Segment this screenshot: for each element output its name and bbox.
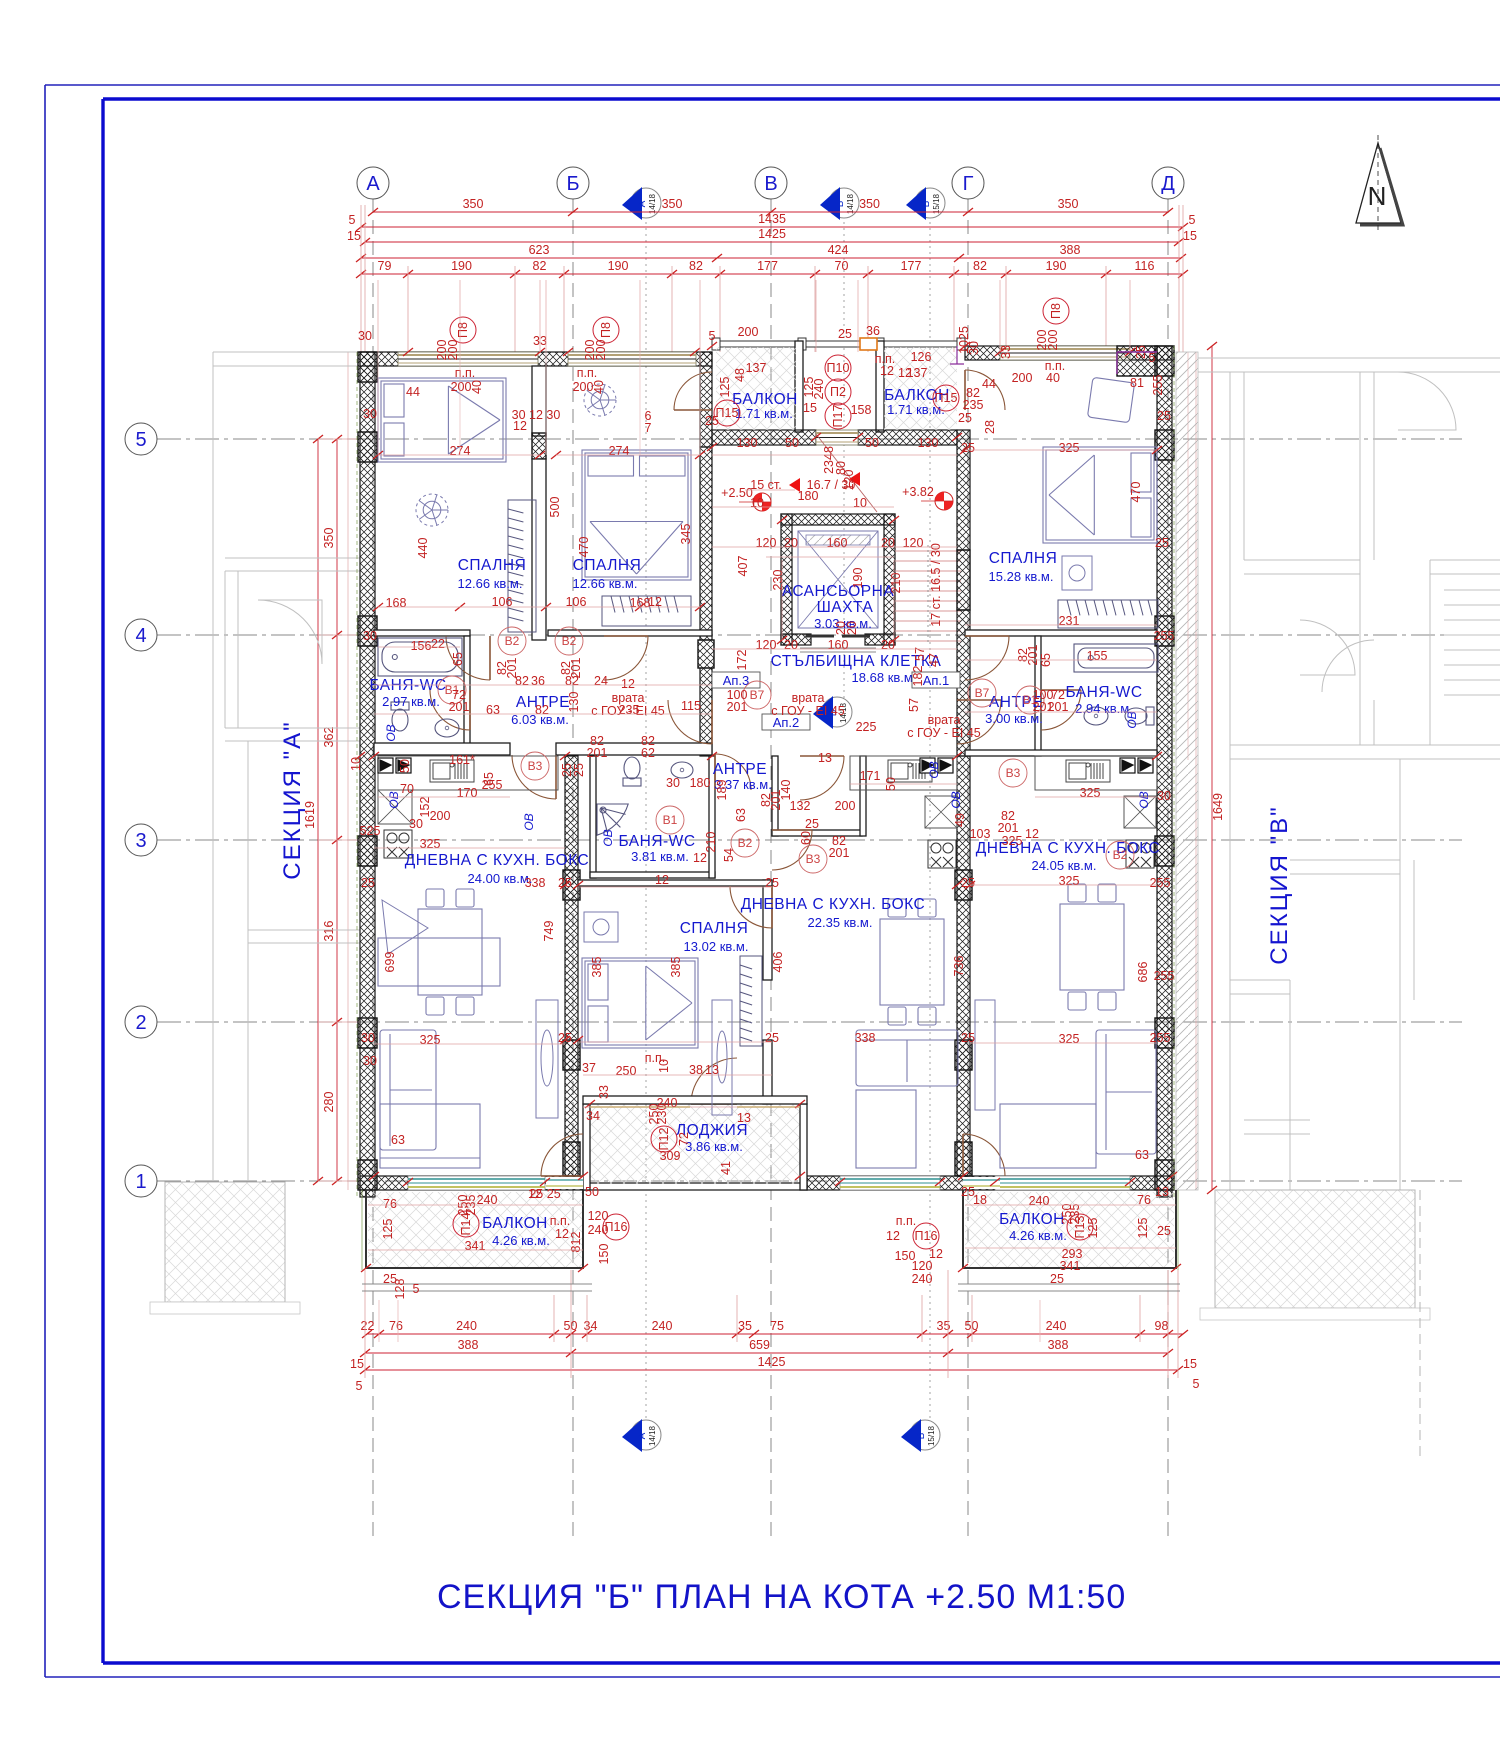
svg-text:50: 50 <box>398 759 412 773</box>
svg-text:СЕКЦИЯ "Б" ПЛАН НА КОТА +2.: СЕКЦИЯ "Б" ПЛАН НА КОТА +2.50 М1:50 <box>437 1578 1126 1616</box>
svg-text:210: 210 <box>889 573 903 594</box>
svg-text:7: 7 <box>645 421 652 435</box>
svg-text:5: 5 <box>135 429 146 451</box>
svg-text:с ГОУ - ЕІ 45: с ГОУ - ЕІ 45 <box>771 704 845 718</box>
svg-text:350: 350 <box>463 197 484 211</box>
svg-text:ДНЕВНА С КУХН. БОКС: ДНЕВНА С КУХН. БОКС <box>405 852 590 869</box>
svg-text:25: 25 <box>838 327 852 341</box>
svg-text:200: 200 <box>451 380 472 394</box>
svg-text:ОВ: ОВ <box>387 791 401 808</box>
svg-text:201: 201 <box>998 821 1019 835</box>
svg-text:В7: В7 <box>975 686 990 700</box>
svg-text:СПАЛНЯ: СПАЛНЯ <box>680 920 749 937</box>
svg-text:4: 4 <box>135 625 146 647</box>
svg-text:63: 63 <box>391 1133 405 1147</box>
svg-text:П8: П8 <box>1049 303 1063 319</box>
svg-text:82: 82 <box>533 259 547 273</box>
svg-text:СПАЛНЯ: СПАЛНЯ <box>458 557 527 574</box>
svg-text:240: 240 <box>812 379 826 400</box>
svg-text:170: 170 <box>457 786 478 800</box>
svg-text:25: 25 <box>958 411 972 425</box>
svg-text:В3: В3 <box>806 852 821 866</box>
svg-text:440: 440 <box>416 538 430 559</box>
svg-text:200: 200 <box>835 799 856 813</box>
svg-text:210: 210 <box>704 832 718 853</box>
svg-text:231: 231 <box>1059 614 1080 628</box>
svg-text:79: 79 <box>378 259 392 273</box>
svg-text:161*: 161* <box>449 753 475 767</box>
svg-text:В2: В2 <box>505 634 520 648</box>
svg-text:137: 137 <box>746 361 767 375</box>
svg-text:25: 25 <box>572 763 586 777</box>
svg-text:150: 150 <box>597 1244 611 1265</box>
svg-text:12.66 кв.м.: 12.66 кв.м. <box>573 576 638 591</box>
svg-text:25: 25 <box>558 876 572 890</box>
svg-text:240: 240 <box>1046 1319 1067 1333</box>
svg-text:50: 50 <box>965 1319 979 1333</box>
svg-text:БАЛКОН: БАЛКОН <box>999 1211 1065 1228</box>
svg-text:1.71 кв.м.: 1.71 кв.м. <box>735 406 793 421</box>
svg-text:ОВ: ОВ <box>522 813 536 830</box>
svg-text:70: 70 <box>400 782 414 796</box>
svg-text:812: 812 <box>569 1232 583 1253</box>
svg-text:81: 81 <box>1130 376 1144 390</box>
svg-text:25: 25 <box>361 876 375 890</box>
svg-text:БАНЯ-WC: БАНЯ-WC <box>618 833 695 850</box>
svg-text:20: 20 <box>845 621 859 635</box>
svg-text:1425: 1425 <box>758 1355 786 1369</box>
svg-text:15.28 кв.м.: 15.28 кв.м. <box>989 569 1054 584</box>
svg-text:25: 25 <box>961 1185 975 1199</box>
svg-text:25: 25 <box>805 817 819 831</box>
svg-text:130: 130 <box>918 436 939 450</box>
svg-text:736: 736 <box>952 956 966 977</box>
svg-text:385: 385 <box>590 957 604 978</box>
svg-text:13: 13 <box>1155 1185 1169 1199</box>
svg-text:В2: В2 <box>1113 848 1128 862</box>
svg-text:А: А <box>637 200 648 207</box>
svg-text:ОВ: ОВ <box>384 724 398 741</box>
svg-text:2: 2 <box>135 1012 146 1034</box>
svg-text:160: 160 <box>828 638 849 652</box>
svg-text:116: 116 <box>1135 259 1155 273</box>
svg-text:В: В <box>764 173 777 195</box>
svg-text:130: 130 <box>567 692 581 713</box>
svg-text:125: 125 <box>381 1219 395 1240</box>
svg-text:В1: В1 <box>663 813 678 827</box>
svg-text:338: 338 <box>525 876 546 890</box>
svg-text:190: 190 <box>608 259 629 273</box>
svg-text:1425: 1425 <box>758 227 786 241</box>
svg-text:749: 749 <box>542 921 556 942</box>
svg-text:30: 30 <box>358 329 372 343</box>
svg-text:201: 201 <box>829 846 850 860</box>
svg-text:30: 30 <box>363 1054 377 1068</box>
svg-text:82: 82 <box>515 674 529 688</box>
svg-text:П15: П15 <box>716 406 739 420</box>
svg-text:177: 177 <box>901 259 922 273</box>
svg-text:57: 57 <box>907 698 921 712</box>
svg-text:44: 44 <box>406 385 420 399</box>
svg-text:п.п.: п.п. <box>577 366 597 380</box>
svg-text:ДНЕВНА С КУХН. БОКС: ДНЕВНА С КУХН. БОКС <box>741 896 926 913</box>
svg-text:63: 63 <box>1135 1148 1149 1162</box>
svg-text:200: 200 <box>594 340 608 361</box>
svg-text:СЕКЦИЯ "В": СЕКЦИЯ "В" <box>1266 805 1293 964</box>
svg-text:225: 225 <box>856 720 877 734</box>
svg-text:280: 280 <box>322 1092 336 1113</box>
svg-text:Б: Б <box>835 200 846 207</box>
svg-text:24: 24 <box>594 674 608 688</box>
svg-text:63: 63 <box>486 703 500 717</box>
svg-text:345: 345 <box>679 524 693 545</box>
svg-text:3.81 кв.м.: 3.81 кв.м. <box>631 849 689 864</box>
svg-text:В2: В2 <box>738 836 753 850</box>
svg-text:Б: Б <box>566 173 579 195</box>
svg-text:В: В <box>921 200 932 207</box>
svg-text:В3: В3 <box>1006 766 1021 780</box>
svg-text:В7: В7 <box>750 688 765 702</box>
svg-text:30: 30 <box>1157 789 1171 803</box>
svg-text:120: 120 <box>903 536 924 550</box>
svg-text:62: 62 <box>641 746 655 760</box>
svg-text:25: 25 <box>705 414 719 428</box>
svg-text:255: 255 <box>482 778 503 792</box>
svg-text:72: 72 <box>677 1132 691 1146</box>
svg-text:5: 5 <box>1189 213 1196 227</box>
svg-text:СПАЛНЯ: СПАЛНЯ <box>573 557 642 574</box>
svg-text:230: 230 <box>771 570 785 591</box>
svg-text:156: 156 <box>411 639 432 653</box>
svg-text:125: 125 <box>1086 1218 1100 1239</box>
svg-text:15/18: 15/18 <box>927 1425 936 1446</box>
svg-text:255: 255 <box>1150 876 1171 890</box>
svg-text:N: N <box>1368 181 1387 211</box>
svg-text:325: 325 <box>420 1033 441 1047</box>
svg-text:+2.50: +2.50 <box>721 486 753 500</box>
svg-text:103: 103 <box>970 827 991 841</box>
svg-text:200: 200 <box>430 809 451 823</box>
svg-text:128: 128 <box>393 1279 407 1300</box>
svg-text:ОВ: ОВ <box>1125 711 1139 728</box>
svg-text:12: 12 <box>880 364 894 378</box>
svg-text:24.05 кв.м.: 24.05 кв.м. <box>1032 858 1097 873</box>
svg-text:150: 150 <box>895 1249 916 1263</box>
svg-text:25: 25 <box>558 1031 572 1045</box>
svg-text:54: 54 <box>722 848 736 862</box>
svg-text:50: 50 <box>564 1319 578 1333</box>
svg-text:12: 12 <box>929 1247 943 1261</box>
svg-text:5: 5 <box>356 1379 363 1393</box>
svg-text:12: 12 <box>621 677 635 691</box>
svg-text:158: 158 <box>851 403 872 417</box>
svg-text:В2: В2 <box>562 634 577 648</box>
svg-text:699: 699 <box>383 952 397 973</box>
svg-text:70: 70 <box>835 259 849 273</box>
svg-text:АСАНСЬОРНА: АСАНСЬОРНА <box>782 583 894 600</box>
svg-text:15: 15 <box>803 401 817 415</box>
svg-text:25: 25 <box>765 1031 779 1045</box>
svg-text:п.п.: п.п. <box>455 366 475 380</box>
svg-text:388: 388 <box>1060 243 1081 257</box>
svg-text:240: 240 <box>652 1319 673 1333</box>
svg-text:ОВ: ОВ <box>927 761 941 778</box>
svg-text:ОВ: ОВ <box>949 791 963 808</box>
svg-text:5: 5 <box>709 329 716 343</box>
svg-text:120: 120 <box>756 536 777 550</box>
svg-text:36: 36 <box>866 324 880 338</box>
svg-text:470: 470 <box>1129 482 1143 503</box>
svg-text:240: 240 <box>1029 1194 1050 1208</box>
svg-text:240: 240 <box>456 1319 477 1333</box>
svg-text:341: 341 <box>465 1239 486 1253</box>
svg-text:172: 172 <box>735 650 749 671</box>
svg-text:686: 686 <box>1136 962 1150 983</box>
svg-text:82: 82 <box>565 674 579 688</box>
svg-text:12: 12 <box>555 1227 569 1241</box>
svg-text:76: 76 <box>383 1197 397 1211</box>
svg-text:15: 15 <box>347 229 361 243</box>
svg-text:190: 190 <box>851 568 865 589</box>
svg-text:500: 500 <box>548 497 562 518</box>
svg-text:388: 388 <box>458 1338 479 1352</box>
svg-text:325: 325 <box>420 837 441 851</box>
svg-text:10: 10 <box>750 496 764 510</box>
svg-text:30: 30 <box>363 407 377 421</box>
svg-text:33: 33 <box>597 1085 611 1099</box>
svg-text:424: 424 <box>828 243 849 257</box>
svg-text:2.97 кв.м.: 2.97 кв.м. <box>382 694 440 709</box>
svg-text:СПАЛНЯ: СПАЛНЯ <box>989 550 1058 567</box>
svg-text:АНТРЕ: АНТРЕ <box>713 761 767 778</box>
svg-text:П12: П12 <box>657 1128 671 1151</box>
svg-text:Г: Г <box>963 173 974 195</box>
svg-text:В3: В3 <box>528 759 543 773</box>
svg-text:63: 63 <box>734 808 748 822</box>
svg-text:125: 125 <box>1136 1218 1150 1239</box>
svg-text:А: А <box>637 1432 648 1439</box>
svg-text:82: 82 <box>973 259 987 273</box>
svg-text:341: 341 <box>1060 1259 1081 1273</box>
svg-text:П16: П16 <box>915 1229 938 1243</box>
svg-text:201: 201 <box>727 700 748 714</box>
svg-text:325: 325 <box>1002 834 1023 848</box>
svg-text:25 25: 25 25 <box>529 1187 560 1201</box>
svg-text:1649: 1649 <box>1211 793 1225 821</box>
svg-text:П2: П2 <box>830 385 846 399</box>
svg-text:1: 1 <box>135 1171 146 1193</box>
svg-text:п.п.: п.п. <box>896 1214 916 1228</box>
svg-text:15: 15 <box>1183 1357 1197 1371</box>
svg-text:13.02 кв.м.: 13.02 кв.м. <box>684 939 749 954</box>
svg-text:36: 36 <box>531 674 545 688</box>
svg-text:200: 200 <box>573 380 594 394</box>
svg-text:33: 33 <box>999 345 1013 359</box>
svg-text:п.п.: п.п. <box>875 352 895 366</box>
svg-text:168: 168 <box>386 596 407 610</box>
svg-text:235: 235 <box>1068 1204 1082 1225</box>
svg-text:врата: врата <box>928 713 961 727</box>
svg-text:126: 126 <box>911 350 932 364</box>
svg-text:37: 37 <box>582 1061 596 1075</box>
svg-text:50: 50 <box>865 436 879 450</box>
svg-text:А: А <box>366 173 380 195</box>
svg-text:п.п.: п.п. <box>550 1214 570 1228</box>
svg-text:325: 325 <box>1059 874 1080 888</box>
svg-text:П8: П8 <box>456 322 470 338</box>
svg-text:155: 155 <box>1087 649 1108 663</box>
svg-text:4.26 кв.м.: 4.26 кв.м. <box>492 1233 550 1248</box>
svg-text:325: 325 <box>1080 786 1101 800</box>
svg-text:П8: П8 <box>599 322 613 338</box>
svg-text:190: 190 <box>1046 259 1067 273</box>
svg-text:44: 44 <box>982 377 996 391</box>
svg-text:25: 25 <box>1155 536 1169 550</box>
svg-text:50: 50 <box>585 1185 599 1199</box>
svg-text:160: 160 <box>827 536 848 550</box>
svg-text:201: 201 <box>587 746 608 760</box>
svg-text:274: 274 <box>609 444 630 458</box>
svg-text:250: 250 <box>616 1064 637 1078</box>
svg-text:П17: П17 <box>831 405 845 428</box>
svg-text:ОВ: ОВ <box>601 829 615 846</box>
svg-text:12: 12 <box>886 1229 900 1243</box>
svg-text:350: 350 <box>1058 197 1079 211</box>
svg-text:ШАХТА: ШАХТА <box>817 599 874 616</box>
svg-text:Д: Д <box>1161 173 1175 195</box>
svg-text:14/18: 14/18 <box>648 193 657 214</box>
svg-text:48: 48 <box>733 368 747 382</box>
svg-text:Ап.3: Ап.3 <box>723 673 750 688</box>
svg-text:201: 201 <box>769 790 783 811</box>
svg-text:25: 25 <box>1157 1224 1171 1238</box>
svg-text:15: 15 <box>350 1357 364 1371</box>
svg-text:240: 240 <box>912 1272 933 1286</box>
svg-text:+3.82: +3.82 <box>902 485 934 499</box>
svg-text:182: 182 <box>911 666 925 687</box>
svg-text:623: 623 <box>529 243 550 257</box>
svg-text:388: 388 <box>1048 1338 1069 1352</box>
svg-text:В: В <box>916 1432 927 1439</box>
svg-text:115: 115 <box>681 699 701 713</box>
svg-text:БАЛКОН: БАЛКОН <box>482 1215 548 1232</box>
svg-text:П15: П15 <box>935 391 958 405</box>
svg-text:525: 525 <box>360 824 381 838</box>
svg-text:22: 22 <box>431 637 445 651</box>
svg-text:120: 120 <box>588 1209 609 1223</box>
svg-text:82: 82 <box>535 703 549 717</box>
svg-text:12: 12 <box>1025 827 1039 841</box>
svg-text:130: 130 <box>737 436 758 450</box>
svg-text:12: 12 <box>898 366 912 380</box>
svg-text:П10: П10 <box>827 361 850 375</box>
svg-text:75: 75 <box>770 1319 784 1333</box>
svg-text:Ап.1: Ап.1 <box>923 673 950 688</box>
svg-text:98: 98 <box>1155 1319 1169 1333</box>
svg-text:25: 25 <box>1157 409 1171 423</box>
svg-text:338: 338 <box>855 1031 876 1045</box>
svg-text:40: 40 <box>470 380 484 394</box>
svg-text:13: 13 <box>818 751 832 765</box>
svg-text:350: 350 <box>322 528 336 549</box>
svg-text:177: 177 <box>757 259 778 273</box>
svg-text:240: 240 <box>588 1223 609 1237</box>
svg-text:470: 470 <box>577 537 591 558</box>
svg-text:65: 65 <box>451 652 465 666</box>
svg-text:255: 255 <box>1154 629 1175 643</box>
svg-text:30: 30 <box>361 1031 375 1045</box>
svg-text:4.26 кв.м.: 4.26 кв.м. <box>1009 1228 1067 1243</box>
svg-text:350: 350 <box>662 197 683 211</box>
svg-text:255: 255 <box>1154 969 1175 983</box>
svg-text:5: 5 <box>1193 1377 1200 1391</box>
svg-text:20: 20 <box>784 638 798 652</box>
svg-text:13: 13 <box>737 1111 751 1125</box>
svg-text:201: 201 <box>449 700 470 714</box>
svg-text:40: 40 <box>1046 371 1060 385</box>
svg-text:200: 200 <box>446 340 460 361</box>
svg-text:30: 30 <box>409 817 423 831</box>
svg-text:235: 235 <box>963 398 984 412</box>
svg-text:49: 49 <box>953 813 967 827</box>
svg-text:22.35 кв.м.: 22.35 кв.м. <box>808 915 873 930</box>
svg-text:180: 180 <box>690 776 711 790</box>
svg-text:врата: врата <box>792 691 825 705</box>
svg-text:76: 76 <box>389 1319 403 1333</box>
svg-text:17 ст. 16.5 / 30: 17 ст. 16.5 / 30 <box>929 543 943 627</box>
svg-text:309: 309 <box>660 1149 681 1163</box>
svg-text:20: 20 <box>784 536 798 550</box>
svg-text:5: 5 <box>1149 351 1156 365</box>
svg-text:10: 10 <box>657 1059 671 1073</box>
svg-text:БАНЯ-WC: БАНЯ-WC <box>1065 684 1142 701</box>
svg-text:БАНЯ-WC: БАНЯ-WC <box>369 677 446 694</box>
svg-text:22: 22 <box>361 1319 375 1333</box>
svg-text:82: 82 <box>689 259 703 273</box>
svg-text:41: 41 <box>719 1161 733 1175</box>
svg-text:12: 12 <box>513 419 527 433</box>
svg-text:12.66 кв.м.: 12.66 кв.м. <box>458 576 523 591</box>
svg-text:47: 47 <box>927 653 941 667</box>
svg-text:с ГОУ - ЕІ 45: с ГОУ - ЕІ 45 <box>907 726 981 740</box>
svg-text:25: 25 <box>1050 1272 1064 1286</box>
svg-text:28: 28 <box>983 420 997 434</box>
svg-text:120: 120 <box>756 638 777 652</box>
svg-text:125: 125 <box>718 377 732 398</box>
svg-text:200: 200 <box>1046 330 1060 351</box>
svg-text:12: 12 <box>655 873 669 887</box>
svg-text:325: 325 <box>1059 1032 1080 1046</box>
svg-text:190: 190 <box>451 259 472 273</box>
svg-text:255: 255 <box>1151 375 1165 396</box>
svg-text:1435: 1435 <box>758 212 786 226</box>
svg-text:350: 350 <box>859 197 880 211</box>
svg-text:385: 385 <box>669 957 683 978</box>
svg-text:10: 10 <box>853 496 867 510</box>
svg-text:120: 120 <box>842 470 856 491</box>
svg-text:35: 35 <box>937 1319 951 1333</box>
svg-text:189: 189 <box>715 780 729 801</box>
svg-text:3: 3 <box>135 830 146 852</box>
svg-text:30: 30 <box>363 629 377 643</box>
svg-text:50: 50 <box>785 436 799 450</box>
svg-text:20: 20 <box>881 536 895 550</box>
svg-text:14/18: 14/18 <box>648 1425 657 1446</box>
svg-text:14/18: 14/18 <box>846 193 855 214</box>
svg-text:40: 40 <box>592 380 606 394</box>
svg-text:235: 235 <box>619 703 640 717</box>
svg-text:15: 15 <box>1183 229 1197 243</box>
